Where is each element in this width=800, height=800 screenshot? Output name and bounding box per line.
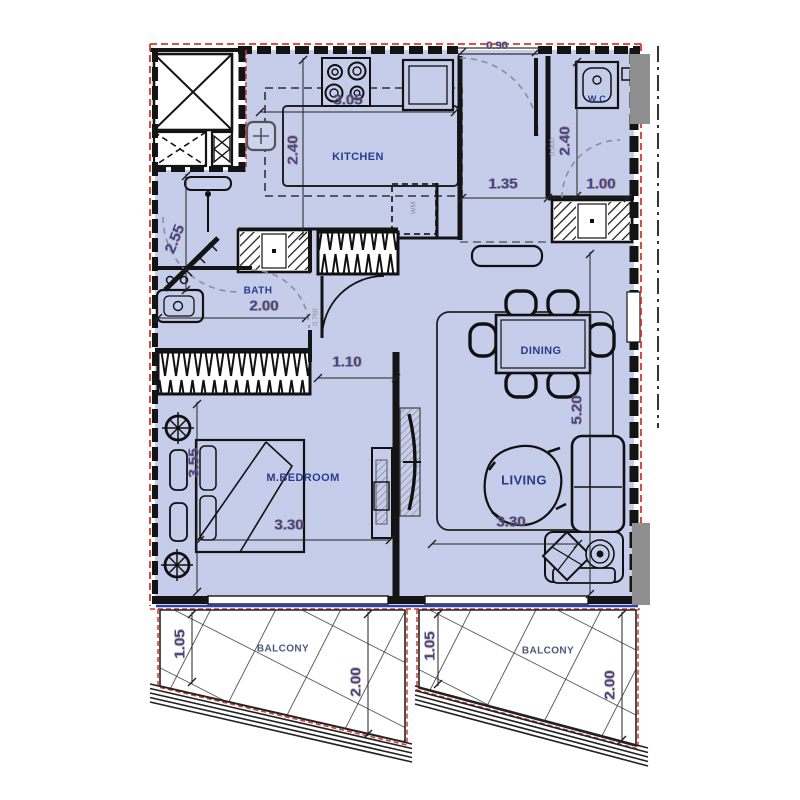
dresser xyxy=(372,448,392,538)
kitchen-sink-icon xyxy=(247,122,275,150)
floor-plan-canvas: 0.90 3.05 2.40 KITCHEN 1.35 2.40 1.00 W.… xyxy=(0,0,800,800)
sideboard xyxy=(472,246,542,266)
balconies xyxy=(150,610,648,766)
elevator-shaft xyxy=(154,54,232,166)
tv-panel xyxy=(400,408,421,516)
floor-plan-drawing xyxy=(0,0,800,800)
bed xyxy=(196,440,304,552)
stove-icon xyxy=(322,58,370,106)
fridge-icon xyxy=(403,60,453,110)
